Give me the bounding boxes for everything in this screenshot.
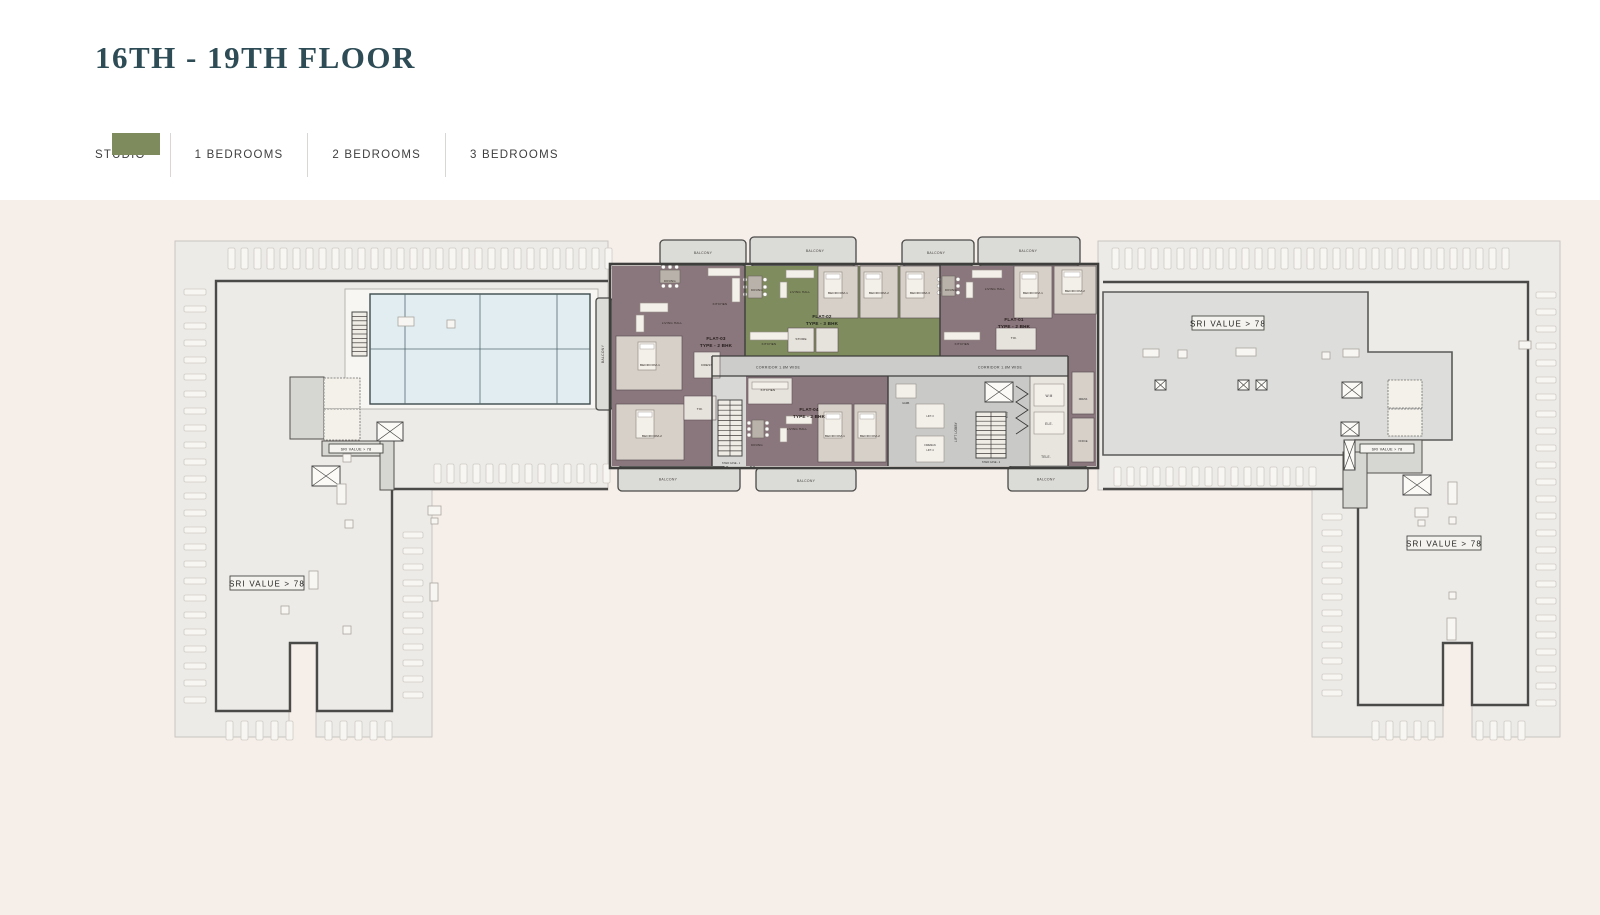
flat-04-label: FLAT-04 — [799, 407, 818, 412]
svg-text:KITCHEN: KITCHEN — [713, 302, 728, 306]
flat-01-label: FLAT-01 — [1004, 317, 1023, 322]
legend-label: 1 BEDROOMS — [195, 149, 284, 161]
balcony-label-vertical: BALCONY — [601, 344, 605, 363]
svg-text:BEDROOM-1: BEDROOM-1 — [1023, 291, 1043, 295]
flat-03-label: FLAT-03 — [706, 336, 725, 341]
balcony-label: BALCONY — [1037, 478, 1056, 482]
svg-text:LIVING HALL: LIVING HALL — [790, 290, 811, 294]
svg-text:BEDROOM-2: BEDROOM-2 — [1065, 289, 1085, 293]
legend: STUDIO 1 BEDROOMS 2 BEDROOMS 3 BEDROOMS — [95, 133, 559, 177]
sri-value-label-deck: SRI VALUE > 78 — [1190, 320, 1266, 329]
legend-label: 2 BEDROOMS — [332, 149, 421, 161]
page-title: 16TH - 19TH FLOOR — [95, 40, 416, 76]
svg-text:BEDROOM-2: BEDROOM-2 — [642, 434, 662, 438]
svg-text:BEDROOM-1: BEDROOM-1 — [825, 434, 845, 438]
svg-text:TYPE - 2 BHK: TYPE - 2 BHK — [998, 324, 1031, 329]
flat-02-label: FLAT-02 — [812, 314, 831, 319]
svg-text:LIFT-3: LIFT-3 — [926, 415, 934, 418]
legend-label: 3 BEDROOMS — [470, 149, 559, 161]
svg-text:KITCHEN: KITCHEN — [955, 342, 970, 346]
svg-text:STAIR CASE - 1: STAIR CASE - 1 — [722, 462, 741, 465]
svg-text:BEDROOM-1: BEDROOM-1 — [640, 363, 660, 367]
legend-separator — [170, 133, 171, 177]
svg-text:GARB.: GARB. — [902, 402, 910, 405]
svg-text:TYPE - 2 BHK: TYPE - 2 BHK — [793, 414, 826, 419]
svg-text:LIVING HALL: LIVING HALL — [787, 427, 808, 431]
svg-text:TOI.: TOI. — [697, 407, 704, 411]
legend-item-1-bedrooms: 1 BEDROOMS — [195, 149, 284, 161]
svg-text:DINING: DINING — [751, 288, 763, 292]
lift-lobby-label: LIFT LOBBY — [954, 421, 958, 442]
balcony-label: BALCONY — [694, 251, 713, 255]
legend-separator — [445, 133, 446, 177]
balcony-label: BALCONY — [797, 479, 816, 483]
corridor-label: CORRIDOR 1.8M WIDE — [756, 366, 801, 370]
svg-text:B.T.U: B.T.U — [1006, 412, 1009, 418]
balcony-label: BALCONY — [1019, 249, 1038, 253]
svg-text:KITCHEN: KITCHEN — [761, 388, 776, 392]
legend-item-2-bedrooms: 2 BEDROOMS — [332, 149, 421, 161]
floor-plan-page: { "page": { "title": "16TH - 19TH FLOOR"… — [0, 0, 1600, 915]
svg-text:STAIR CASE - 2: STAIR CASE - 2 — [982, 461, 1001, 464]
legend-swatch-3-bedrooms — [112, 133, 160, 155]
svg-text:OFFICE: OFFICE — [1078, 440, 1087, 443]
svg-text:LIVING HALL: LIVING HALL — [985, 287, 1006, 291]
svg-text:BEDROOM-2: BEDROOM-2 — [860, 434, 880, 438]
sri-value-label-left-small: SRI VALUE > 78 — [341, 448, 372, 452]
svg-text:ELE.: ELE. — [1045, 422, 1053, 426]
sri-value-label-left: SRI VALUE > 78 — [229, 580, 305, 589]
svg-text:TELE.: TELE. — [1041, 455, 1051, 459]
legend-item-3-bedrooms: 3 BEDROOMS — [470, 149, 559, 161]
svg-text:DRESS: DRESS — [701, 363, 712, 367]
svg-text:BEDROOM-3: BEDROOM-3 — [910, 291, 930, 295]
svg-text:BEDROOM-1: BEDROOM-1 — [828, 291, 848, 295]
svg-text:TYPE - 2 BHK: TYPE - 2 BHK — [700, 343, 733, 348]
svg-text:TOI.: TOI. — [1011, 336, 1018, 340]
svg-text:DINING: DINING — [751, 443, 763, 447]
svg-text:BEDROOM-2: BEDROOM-2 — [869, 291, 889, 295]
svg-text:W.M: W.M — [1046, 394, 1053, 398]
svg-text:LIFT-4: LIFT-4 — [926, 449, 934, 452]
svg-text:STORE: STORE — [795, 337, 806, 341]
legend-separator — [307, 133, 308, 177]
balcony-label: BALCONY — [806, 249, 825, 253]
corridor-label: CORRIDOR 1.8M WIDE — [978, 366, 1023, 370]
sri-value-label-right-small: SRI VALUE > 78 — [1372, 448, 1403, 452]
svg-text:LIVING HALL: LIVING HALL — [662, 321, 683, 325]
tennis-court — [345, 289, 598, 409]
balcony-label: BALCONY — [927, 251, 946, 255]
svg-text:DINING: DINING — [664, 279, 676, 283]
svg-text:DRESS: DRESS — [1079, 398, 1088, 401]
svg-text:FIREMAN: FIREMAN — [924, 444, 935, 447]
sri-value-label-right: SRI VALUE > 78 — [1406, 540, 1482, 549]
svg-text:KITCHEN: KITCHEN — [762, 342, 777, 346]
svg-text:TYPE - 3 BHK: TYPE - 3 BHK — [806, 321, 839, 326]
balcony-label: BALCONY — [659, 478, 678, 482]
central-block: BALCONY BALCONY BALCONY BALCONY BALCONY … — [596, 237, 1098, 491]
svg-text:DINING: DINING — [945, 288, 957, 292]
